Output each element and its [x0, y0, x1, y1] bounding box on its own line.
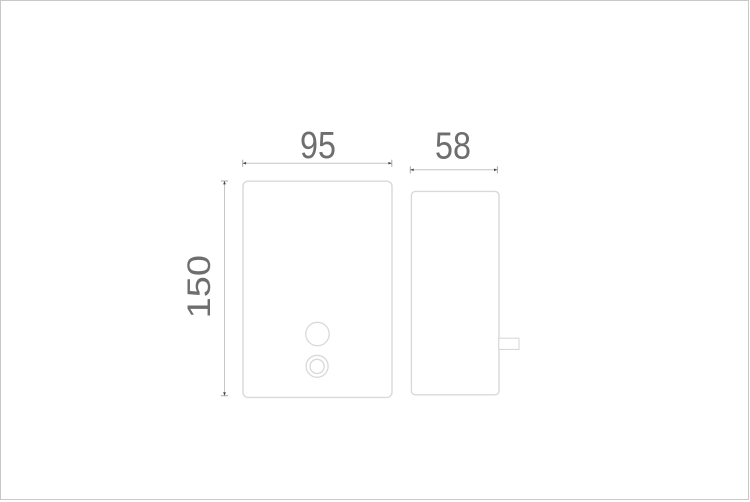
svg-text:95: 95: [300, 125, 336, 167]
svg-text:58: 58: [435, 125, 471, 167]
svg-text:150: 150: [180, 255, 217, 318]
